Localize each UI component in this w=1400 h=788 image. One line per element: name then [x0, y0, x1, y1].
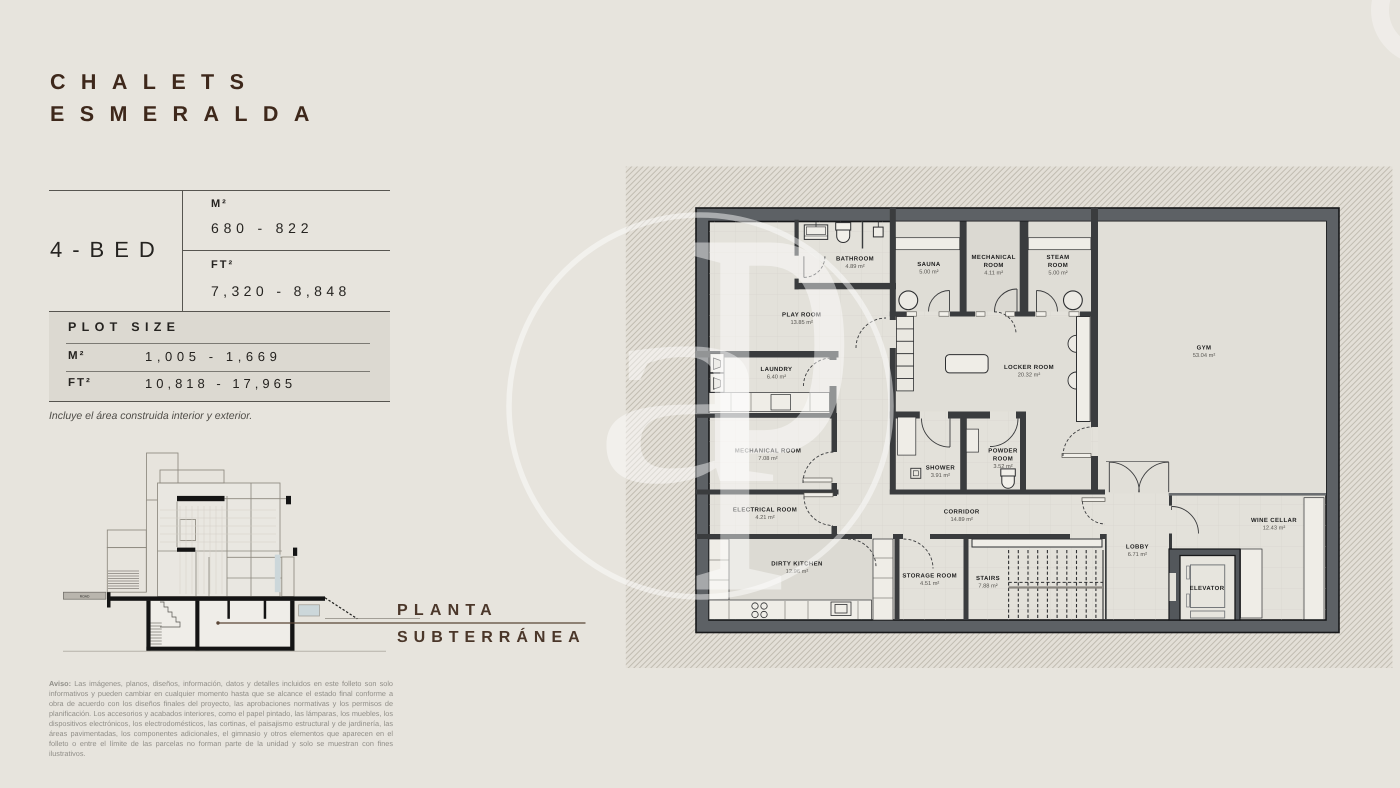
svg-text:ELEVATOR: ELEVATOR [1190, 585, 1225, 592]
svg-text:3.91 m²: 3.91 m² [931, 473, 950, 479]
svg-text:7.88 m²: 7.88 m² [978, 584, 997, 590]
svg-text:5.00 m²: 5.00 m² [919, 270, 938, 276]
svg-text:GYM: GYM [1197, 345, 1212, 352]
svg-text:ROAD: ROAD [80, 595, 90, 599]
svg-text:CORRIDOR: CORRIDOR [944, 509, 980, 516]
svg-text:20.32 m²: 20.32 m² [1018, 373, 1041, 379]
svg-text:P: P [686, 118, 857, 705]
svg-text:WINE CELLAR: WINE CELLAR [1251, 517, 1297, 524]
svg-text:12.43 m²: 12.43 m² [1263, 526, 1286, 532]
svg-text:SHOWER: SHOWER [926, 465, 956, 472]
svg-text:LOCKER ROOM: LOCKER ROOM [1004, 364, 1054, 371]
svg-text:SAUNA: SAUNA [917, 261, 941, 268]
svg-text:ROOM: ROOM [984, 262, 1004, 269]
svg-text:14.89 m²: 14.89 m² [950, 517, 973, 523]
svg-text:3.52 m²: 3.52 m² [993, 464, 1012, 470]
svg-text:MECHANICAL: MECHANICAL [972, 254, 1016, 261]
svg-text:5.00 m²: 5.00 m² [1048, 271, 1067, 277]
svg-text:POWDER: POWDER [988, 448, 1018, 455]
svg-text:STAIRS: STAIRS [976, 575, 1000, 582]
svg-text:STEAM: STEAM [1047, 254, 1070, 261]
svg-text:ROOM: ROOM [1048, 262, 1068, 269]
svg-text:LOBBY: LOBBY [1126, 544, 1149, 551]
svg-text:ROOM: ROOM [993, 456, 1013, 463]
svg-text:STORAGE ROOM: STORAGE ROOM [902, 573, 957, 580]
svg-text:53.04 m²: 53.04 m² [1193, 353, 1216, 359]
svg-text:4.51 m²: 4.51 m² [920, 581, 939, 587]
svg-text:4.11 m²: 4.11 m² [984, 271, 1003, 277]
svg-text:6.71 m²: 6.71 m² [1128, 552, 1147, 558]
